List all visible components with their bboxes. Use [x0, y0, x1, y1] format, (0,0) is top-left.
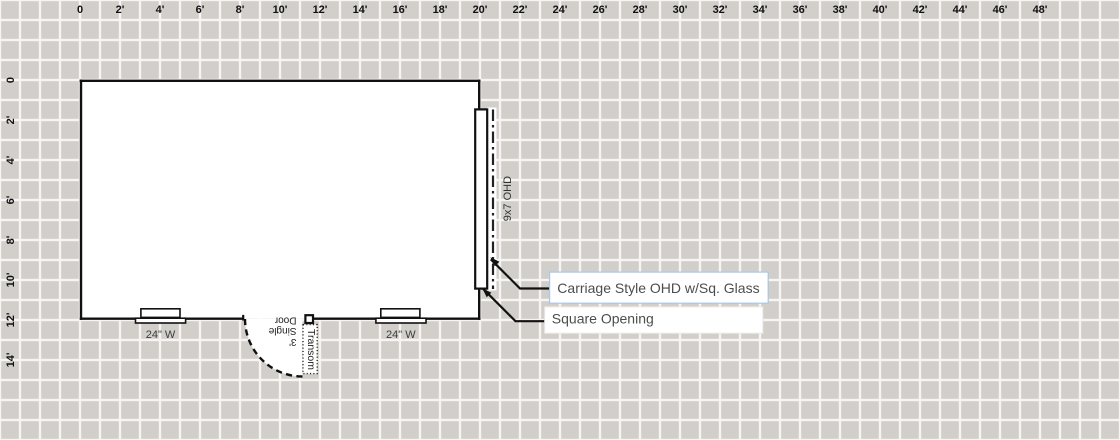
svg-text:40': 40' — [873, 4, 888, 16]
svg-text:0: 0 — [77, 4, 83, 16]
svg-text:4': 4' — [156, 4, 165, 16]
svg-text:6': 6' — [196, 4, 205, 16]
svg-text:48': 48' — [1033, 4, 1048, 16]
svg-text:24" W: 24" W — [146, 329, 176, 341]
svg-text:10': 10' — [273, 4, 288, 16]
svg-text:8': 8' — [236, 4, 245, 16]
svg-text:Door: Door — [274, 315, 296, 326]
svg-text:14': 14' — [5, 352, 17, 367]
svg-text:28': 28' — [633, 4, 648, 16]
svg-text:6': 6' — [5, 195, 17, 204]
svg-text:24" W: 24" W — [386, 329, 416, 341]
svg-text:2': 2' — [5, 115, 17, 124]
svg-text:12': 12' — [5, 312, 17, 327]
svg-text:2': 2' — [116, 4, 125, 16]
svg-text:Transom: Transom — [305, 329, 317, 370]
svg-text:34': 34' — [753, 4, 768, 16]
svg-text:18': 18' — [433, 4, 448, 16]
svg-text:38': 38' — [833, 4, 848, 16]
svg-text:12': 12' — [313, 4, 328, 16]
svg-text:4': 4' — [5, 155, 17, 164]
svg-text:Single: Single — [268, 325, 296, 336]
svg-text:46': 46' — [993, 4, 1008, 16]
svg-text:10': 10' — [5, 272, 17, 287]
svg-text:44': 44' — [953, 4, 968, 16]
svg-text:24': 24' — [553, 4, 568, 16]
svg-text:Carriage Style OHD w/Sq. Glass: Carriage Style OHD w/Sq. Glass — [557, 280, 759, 296]
svg-text:Square Opening: Square Opening — [552, 311, 654, 327]
svg-text:9x7 OHD: 9x7 OHD — [502, 176, 514, 221]
svg-text:8': 8' — [5, 235, 17, 244]
svg-text:16': 16' — [393, 4, 408, 16]
svg-text:3': 3' — [289, 336, 297, 347]
svg-text:42': 42' — [913, 4, 928, 16]
svg-text:22': 22' — [513, 4, 528, 16]
svg-text:36': 36' — [793, 4, 808, 16]
svg-text:32': 32' — [713, 4, 728, 16]
svg-text:14': 14' — [353, 4, 368, 16]
svg-text:20': 20' — [473, 4, 488, 16]
svg-text:26': 26' — [593, 4, 608, 16]
svg-text:30': 30' — [673, 4, 688, 16]
svg-text:0: 0 — [5, 77, 17, 83]
